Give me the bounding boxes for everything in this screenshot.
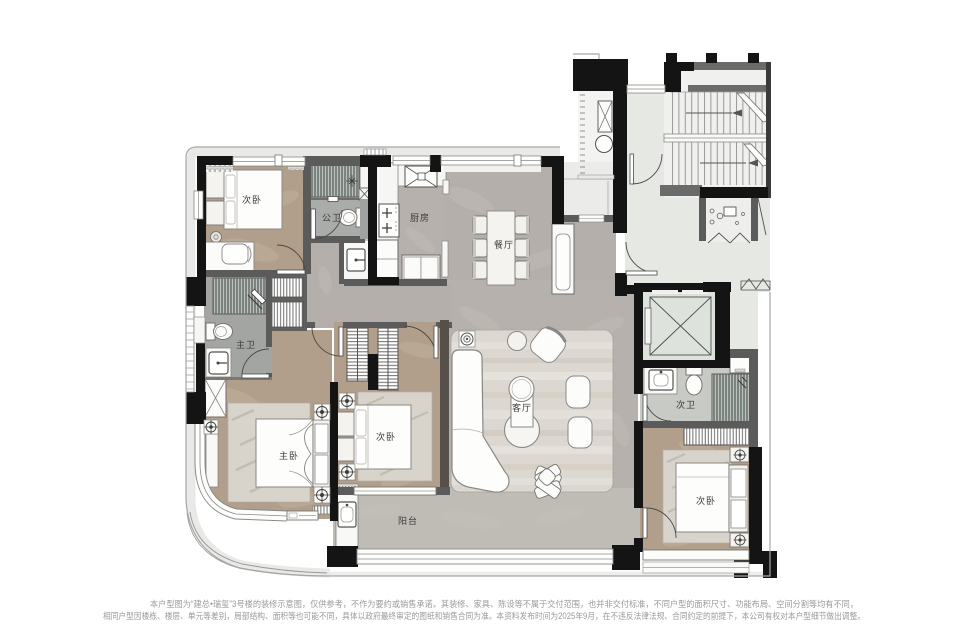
svg-text:餐厅: 餐厅 xyxy=(494,239,514,250)
svg-text:厨房: 厨房 xyxy=(410,212,430,223)
svg-text:主卫: 主卫 xyxy=(236,339,256,350)
svg-text:公卫: 公卫 xyxy=(322,213,342,223)
svg-text:次卧: 次卧 xyxy=(242,194,262,205)
svg-text:阳台: 阳台 xyxy=(398,515,418,526)
svg-text:客厅: 客厅 xyxy=(512,402,532,413)
svg-text:次卫: 次卫 xyxy=(676,399,696,410)
svg-text:主卧: 主卧 xyxy=(279,450,299,461)
svg-text:次卧: 次卧 xyxy=(376,431,396,442)
svg-text:相同户型因楼栋、楼层、单元等差别，局部结构、面积等也可能不同: 相同户型因楼栋、楼层、单元等差别，局部结构、面积等也可能不同，具体以政府最终审定… xyxy=(103,610,865,621)
svg-text:本户型图为“建总•瑞玺”3号楼的装修示意图，仅供参考，不作为: 本户型图为“建总•瑞玺”3号楼的装修示意图，仅供参考，不作为要约或销售承诺。其装… xyxy=(150,598,858,609)
svg-text:次卧: 次卧 xyxy=(696,495,716,506)
